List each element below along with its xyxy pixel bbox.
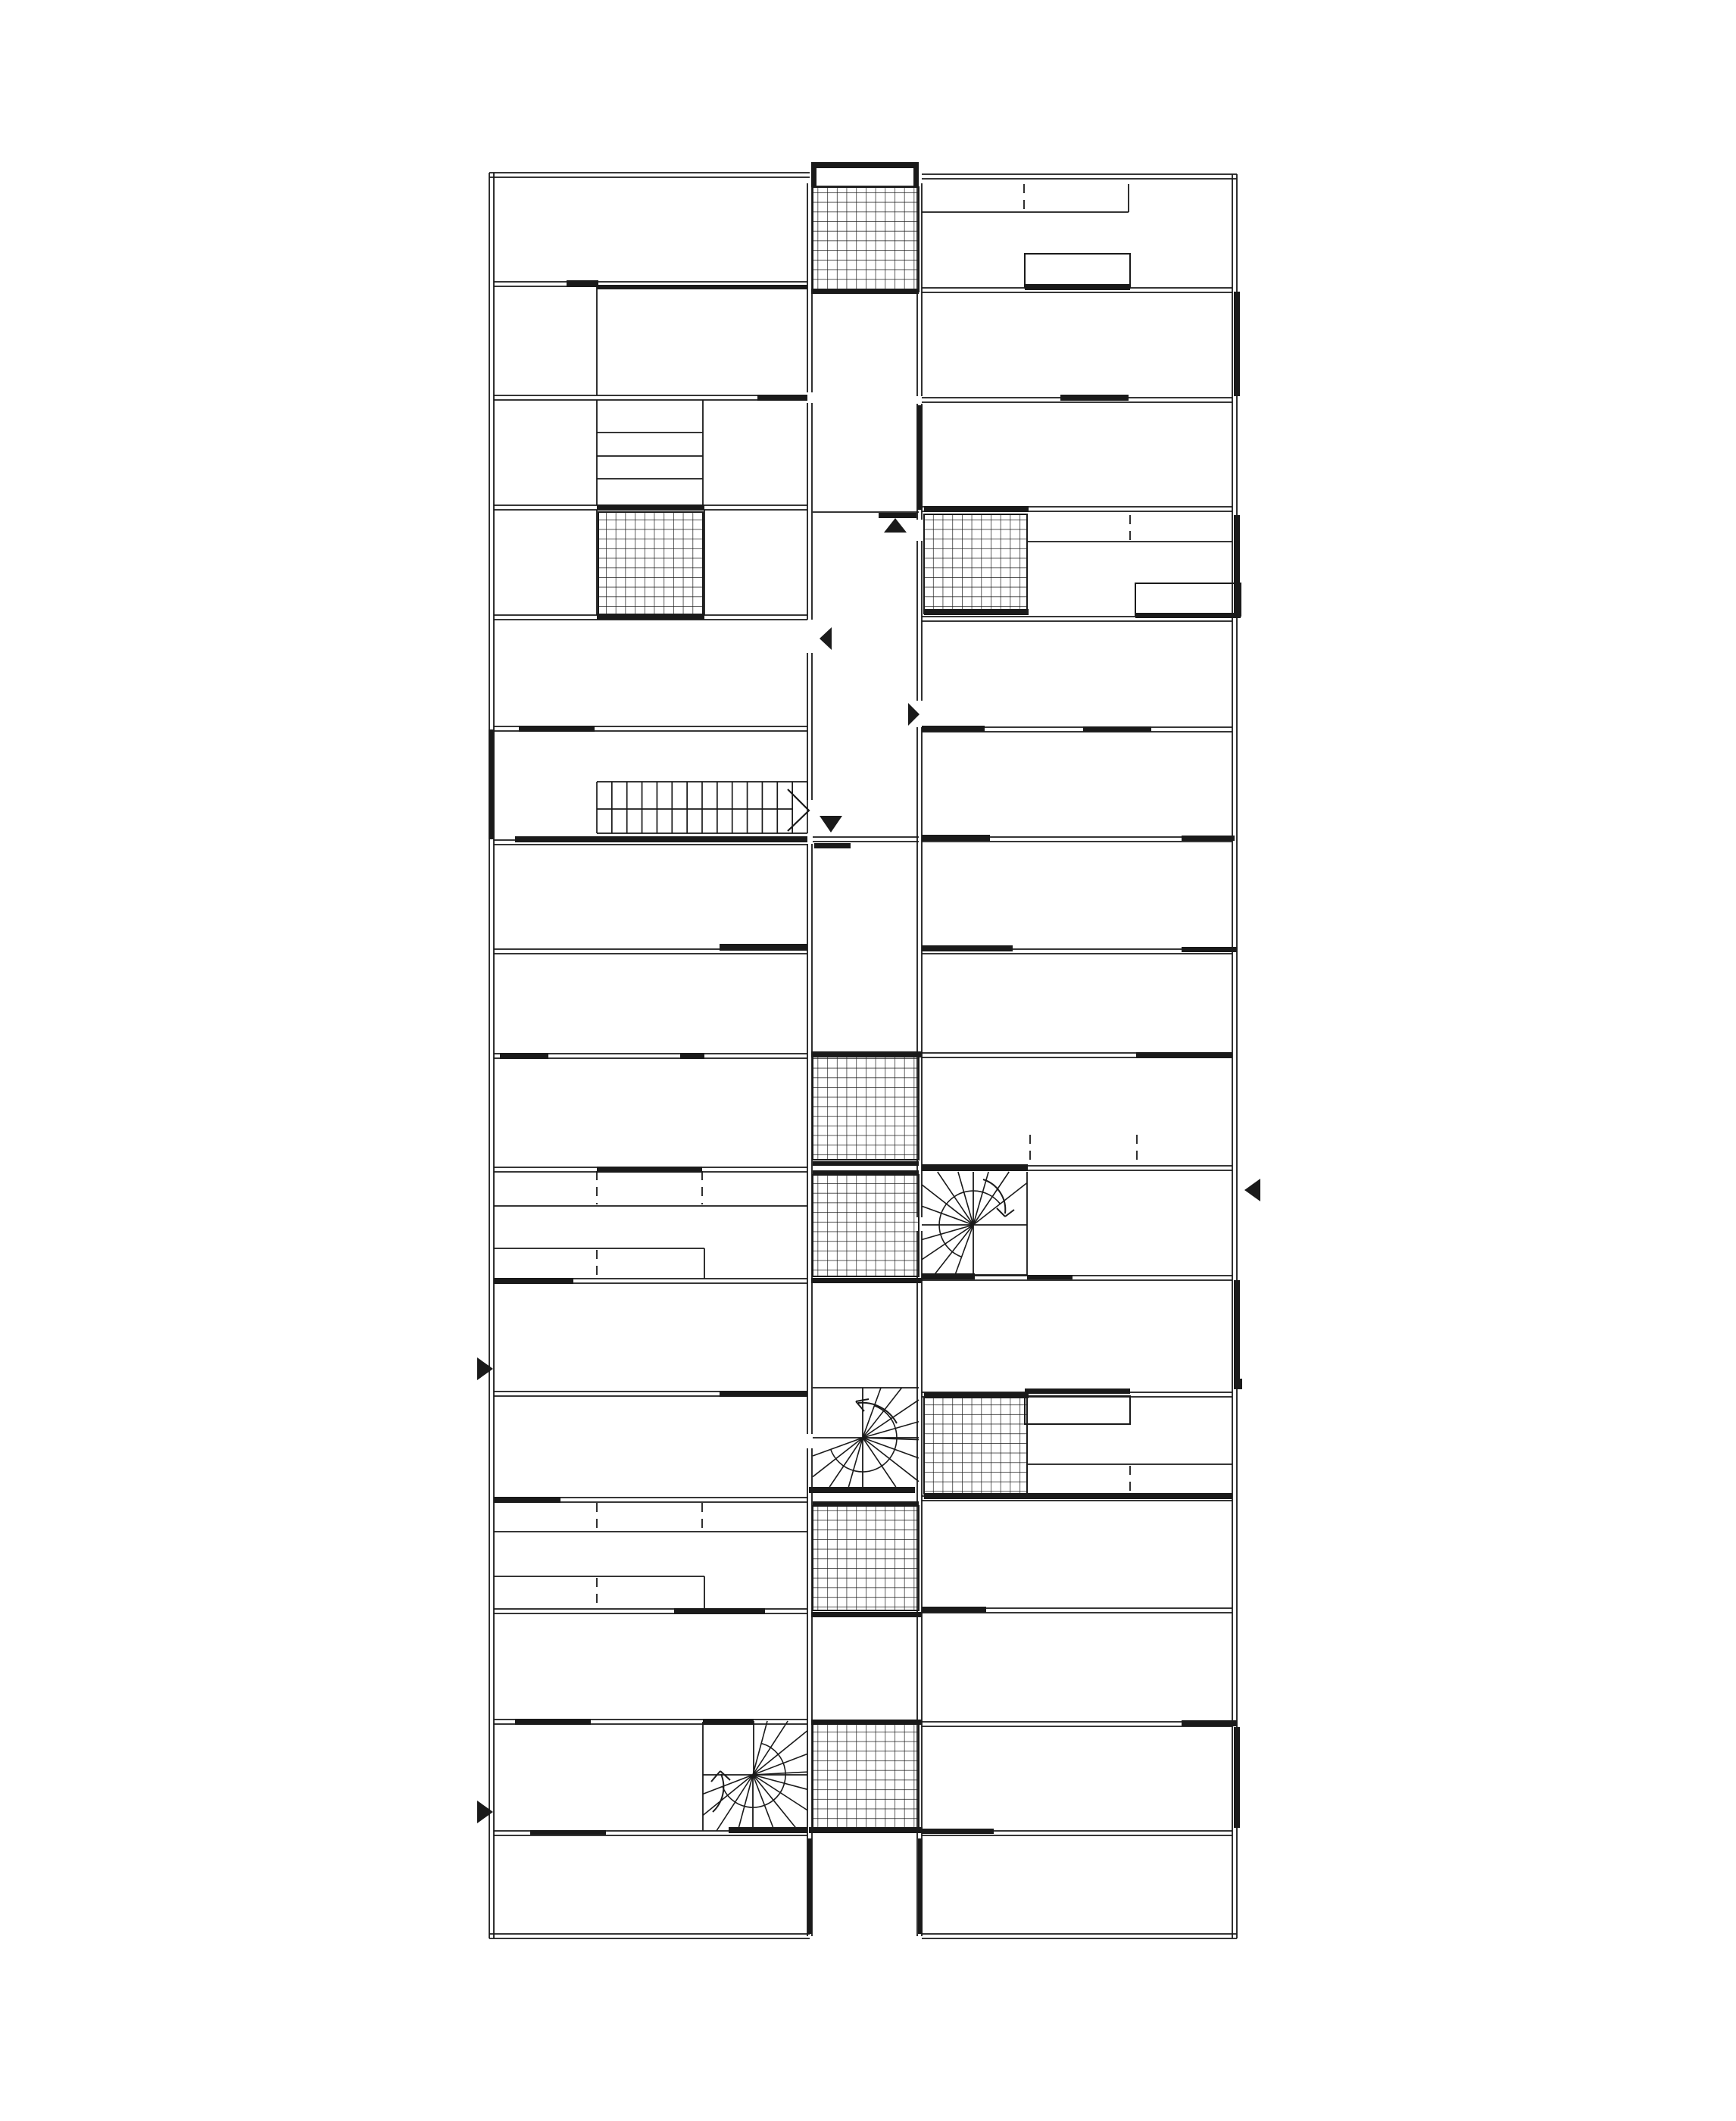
wall-bar [809, 1827, 923, 1833]
wall-bar [1182, 1720, 1237, 1726]
wall-bar [597, 614, 704, 620]
spiral-stair-tread [753, 1721, 767, 1775]
entry-arrow-up [884, 518, 907, 533]
wall-bar [489, 729, 494, 839]
spiral-stair-tread [753, 1731, 807, 1775]
spiral-stair-tread [753, 1775, 774, 1831]
wall-bar [811, 162, 919, 168]
shaft-hatch [924, 1398, 1027, 1494]
spiral-stair-tread [813, 1438, 863, 1456]
room-box [1025, 1396, 1130, 1424]
wall-bar [813, 1501, 919, 1506]
spiral-stair-tread [863, 1438, 896, 1487]
spiral-stair-tread [922, 1206, 973, 1225]
room-box [1025, 254, 1130, 288]
wall-bar [924, 506, 1029, 512]
shaft-hatch [813, 1175, 919, 1276]
entry-arrow-down [820, 816, 842, 832]
wall-bar [811, 1278, 922, 1283]
wall-bar [917, 405, 923, 510]
spiral-stair-tread [717, 1775, 753, 1831]
wall-bar [922, 945, 1013, 951]
wall-bar [757, 395, 807, 401]
wall-bar [680, 1053, 704, 1059]
spiral-stair-tread [753, 1775, 807, 1789]
wall-bar [519, 726, 595, 732]
wall-bar [918, 1838, 923, 1934]
spiral-stair-tread [958, 1172, 973, 1225]
wall-bar [720, 944, 807, 951]
wall-bar [1060, 395, 1129, 401]
spiral-stair-tread [738, 1775, 753, 1831]
wall-bar [515, 1719, 591, 1725]
shaft-hatch [813, 1724, 919, 1830]
wall-bar [1236, 1379, 1242, 1389]
wall-bar [924, 1392, 1029, 1398]
wall-bar [1234, 515, 1240, 615]
spiral-stair-tread [753, 1775, 798, 1831]
wall-bar [703, 1719, 754, 1725]
wall-bar [1136, 1052, 1232, 1058]
wall-bar [814, 843, 851, 848]
entry-arrow-right-west-edge-1 [477, 1357, 493, 1380]
wall-bar [494, 1278, 573, 1284]
wall-bar [922, 1607, 986, 1613]
wall-bar [811, 162, 816, 186]
wall-bar [567, 280, 598, 287]
wall-bar [811, 1051, 922, 1057]
wall-bar [924, 1493, 1232, 1499]
spiral-direction-arrow [983, 1179, 1014, 1217]
entry-arrow-right-west-edge-2 [477, 1801, 493, 1823]
wall-bar [1135, 613, 1241, 618]
spiral-stair-tread [922, 1225, 973, 1260]
wall-bar [879, 513, 916, 518]
wall-bar [811, 289, 919, 294]
wall-bar [922, 1273, 975, 1279]
wall-bar [1083, 726, 1151, 732]
wall-bar [924, 609, 1029, 615]
spiral-stair-tread [863, 1438, 919, 1458]
spiral-stair-tread [829, 1438, 863, 1487]
wall-bar [809, 1487, 915, 1493]
wall-bar [813, 1170, 919, 1175]
wall-bar [922, 726, 985, 732]
spiral-stair-tread [922, 1225, 973, 1239]
spiral-stair-tread [848, 1438, 863, 1487]
wall-bar [674, 1608, 765, 1614]
shaft-hatch [813, 1506, 919, 1610]
wall-bar [1182, 947, 1237, 952]
entry-arrow-left-corridor [820, 627, 832, 650]
entry-arrow-left-east-edge [1244, 1179, 1260, 1201]
wall-bar [494, 1497, 560, 1503]
wall-bar [922, 1164, 1028, 1171]
spiral-stair-tread [863, 1438, 919, 1482]
shaft-hatch [598, 512, 703, 615]
wall-bar [1182, 836, 1235, 841]
wall-bar [813, 1161, 919, 1166]
stair-direction-arrowhead [788, 789, 809, 831]
room-box [1135, 583, 1241, 616]
wall-bar [1025, 1388, 1130, 1394]
shaft-hatch [813, 187, 919, 292]
spiral-stair-tread [922, 1185, 973, 1225]
wall-bar [1234, 1727, 1240, 1828]
spiral-stair-tread [863, 1388, 881, 1438]
wall-bar [597, 504, 704, 511]
wall-bar [922, 1829, 994, 1834]
wall-bar [1027, 1275, 1073, 1279]
spiral-stair-tread [863, 1422, 919, 1438]
floor-plan-drawing [0, 0, 1736, 2121]
wall-bar [597, 285, 807, 289]
wall-bar [1025, 284, 1130, 290]
wall-bar [913, 162, 919, 186]
shaft-hatch [813, 1055, 919, 1160]
spiral-stair-tread [955, 1225, 973, 1275]
wall-bar [922, 835, 990, 841]
wall-bar [811, 1612, 922, 1617]
wall-bar [515, 836, 807, 842]
wall-bar [1234, 1280, 1240, 1389]
plan-sheet [0, 0, 1736, 2121]
wall-bar [811, 1720, 922, 1725]
spiral-stair-tread [938, 1172, 973, 1225]
wall-bar [500, 1053, 548, 1059]
wall-bar [1234, 292, 1240, 396]
wall-bar [530, 1830, 606, 1835]
wall-bar [807, 1838, 812, 1934]
entry-arrow-right-corridor [908, 703, 920, 726]
shaft-hatch [924, 514, 1027, 614]
wall-bar [720, 1391, 807, 1397]
wall-bar [597, 1167, 702, 1173]
